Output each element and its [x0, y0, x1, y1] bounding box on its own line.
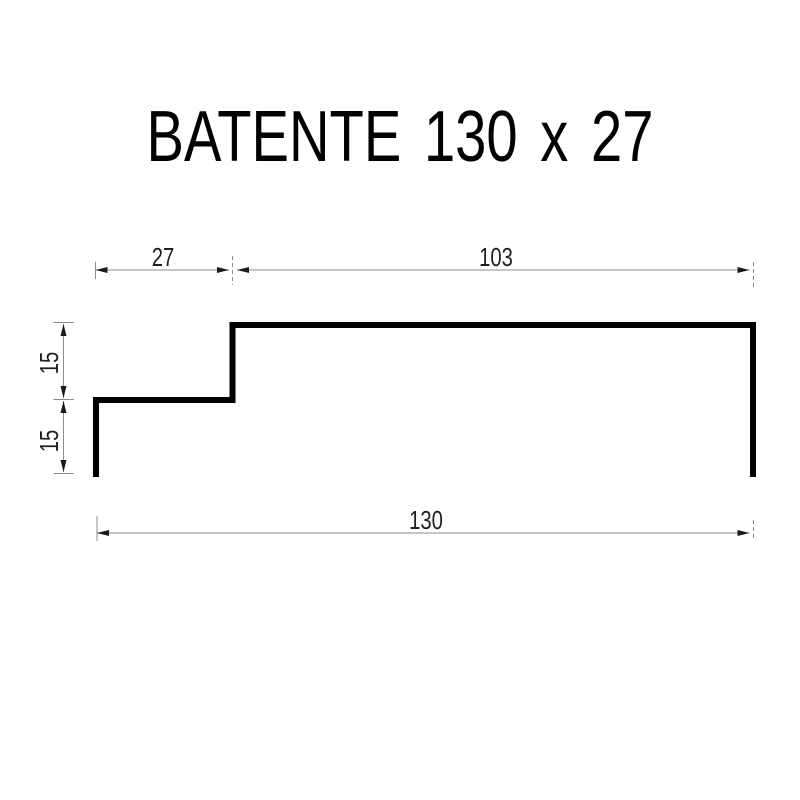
dimension-left-lower-15: 15 — [35, 400, 74, 474]
arrowhead-up-icon — [61, 401, 67, 413]
profile-outline — [96, 325, 753, 477]
arrowhead-up-icon — [61, 324, 67, 336]
arrowhead-right-icon — [738, 267, 750, 273]
dimension-label: 27 — [152, 243, 175, 272]
arrowhead-right-icon — [738, 530, 750, 536]
dimension-label: 15 — [35, 352, 64, 375]
arrowhead-left-icon — [97, 530, 109, 536]
arrowhead-right-icon — [217, 267, 229, 273]
dimension-label: 103 — [479, 243, 513, 272]
dimension-bottom-130: 130 — [97, 506, 754, 541]
profile-section-drawing: 27 103 15 15 130 — [0, 0, 800, 800]
dimension-left-upper-15: 15 — [35, 323, 74, 399]
dimension-top-right-103: 103 — [233, 243, 754, 288]
arrowhead-left-icon — [96, 267, 108, 273]
arrowhead-down-icon — [61, 460, 67, 472]
arrowhead-left-icon — [237, 267, 249, 273]
dimension-label: 130 — [409, 506, 443, 535]
arrowhead-down-icon — [61, 386, 67, 398]
dimension-label: 15 — [35, 430, 64, 453]
dimension-top-left-27: 27 — [96, 243, 230, 279]
